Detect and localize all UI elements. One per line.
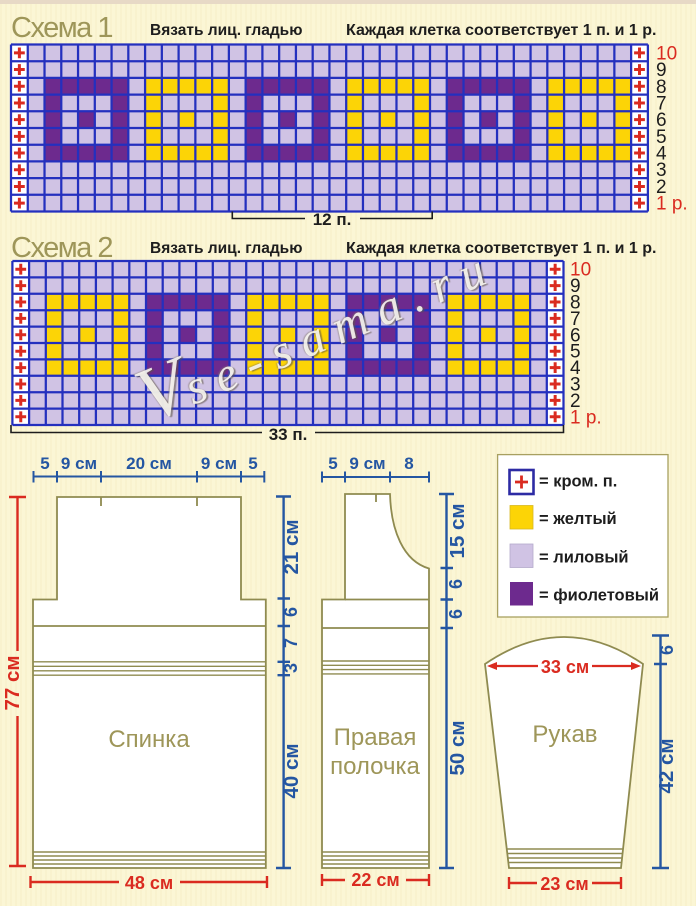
svg-text:Правая: Правая <box>334 724 417 751</box>
svg-text:8: 8 <box>404 454 413 473</box>
svg-text:Вязать лиц. гладью: Вязать лиц. гладью <box>150 240 302 257</box>
svg-text:42 см: 42 см <box>655 738 678 793</box>
svg-text:3: 3 <box>281 663 301 673</box>
svg-text:6: 6 <box>657 645 677 655</box>
svg-text:7: 7 <box>281 638 301 648</box>
svg-text:= кром. п.: = кром. п. <box>539 473 617 491</box>
svg-text:Схема 2: Схема 2 <box>11 232 112 264</box>
svg-text:9 см: 9 см <box>61 454 97 473</box>
svg-text:6: 6 <box>281 607 301 617</box>
svg-text:5: 5 <box>40 454 49 473</box>
svg-text:Рукав: Рукав <box>532 721 597 748</box>
svg-text:Вязать лиц. гладью: Вязать лиц. гладью <box>150 22 302 39</box>
svg-text:6: 6 <box>446 609 466 619</box>
svg-text:полочка: полочка <box>330 753 420 780</box>
svg-text:1 р.: 1 р. <box>570 407 602 428</box>
svg-text:15 см: 15 см <box>446 503 469 558</box>
svg-text:6: 6 <box>446 579 466 589</box>
svg-text:48 см: 48 см <box>125 873 173 893</box>
svg-text:23 см: 23 см <box>540 874 588 894</box>
svg-text:33 см: 33 см <box>541 657 589 677</box>
svg-text:9 см: 9 см <box>201 454 237 473</box>
svg-text:Каждая клетка соответствует 1: Каждая клетка соответствует 1 п. и 1 р. <box>346 22 656 39</box>
svg-text:1 р.: 1 р. <box>656 194 688 215</box>
svg-text:= желтый: = желтый <box>539 510 617 528</box>
svg-text:9 см: 9 см <box>349 454 385 473</box>
svg-text:50 см: 50 см <box>446 720 469 775</box>
svg-text:Спинка: Спинка <box>108 726 190 753</box>
svg-text:5: 5 <box>328 454 337 473</box>
svg-text:12 п.: 12 п. <box>313 210 352 229</box>
svg-text:Схема 1: Схема 1 <box>11 12 112 44</box>
svg-text:40 см: 40 см <box>280 743 303 798</box>
svg-text:22 см: 22 см <box>351 870 399 890</box>
svg-text:20 см: 20 см <box>126 454 172 473</box>
svg-text:77 см: 77 см <box>1 655 24 710</box>
svg-text:33 п.: 33 п. <box>269 425 308 444</box>
svg-text:5: 5 <box>248 454 257 473</box>
svg-text:= фиолетовый: = фиолетовый <box>539 587 659 605</box>
svg-text:= лиловый: = лиловый <box>539 549 629 567</box>
svg-text:21 см: 21 см <box>280 519 303 574</box>
